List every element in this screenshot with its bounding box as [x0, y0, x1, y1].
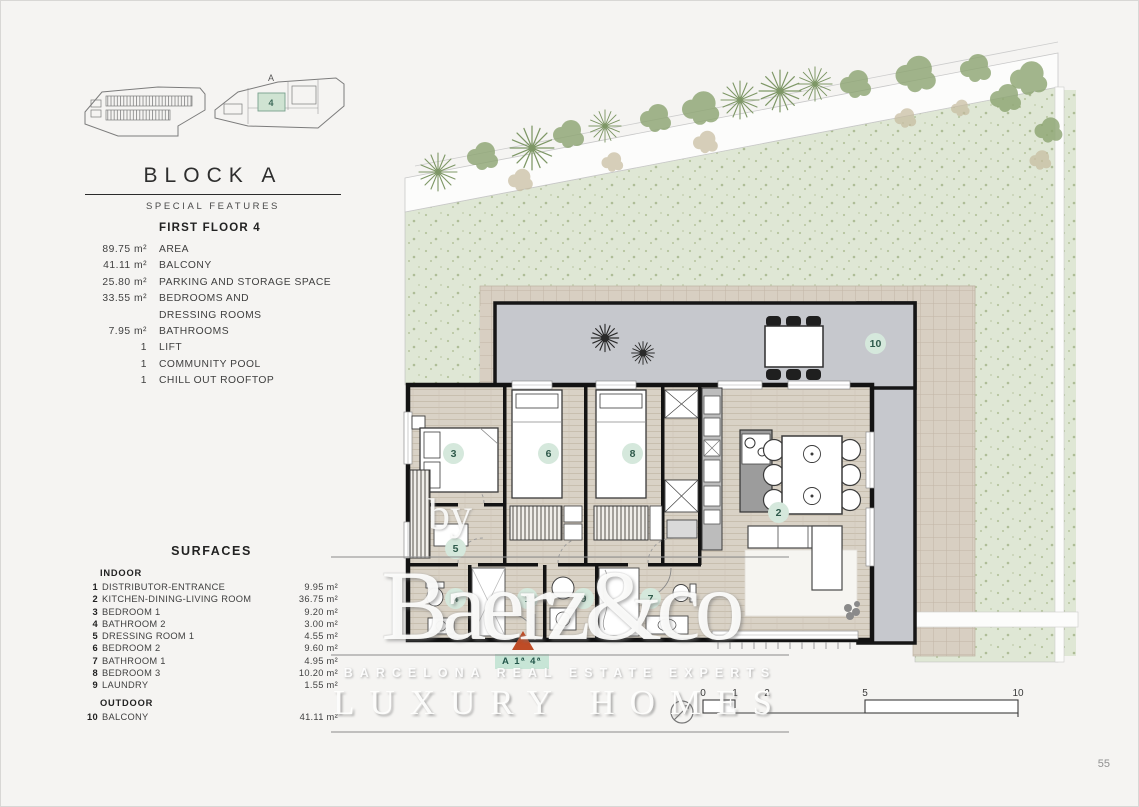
- garden-path-horizontal: [915, 612, 1078, 627]
- page-number: 55: [1078, 758, 1110, 770]
- surfaces-table: SURFACES INDOOR 1DISTRIBUTOR-ENTRANCE9.9…: [85, 544, 338, 723]
- surface-label: LAUNDRY: [102, 679, 148, 691]
- watermark-rule: [331, 731, 789, 733]
- feature-value: 7.95 m²: [85, 324, 147, 340]
- north-compass-icon: [671, 701, 693, 723]
- scale-label: 1: [732, 688, 738, 699]
- feature-label: CHILL OUT ROOFTOP: [159, 373, 335, 389]
- feature-value: 1: [85, 357, 147, 373]
- surface-label: BALCONY: [102, 711, 149, 723]
- feature-value: 1: [85, 340, 147, 356]
- surface-number: 3: [85, 606, 98, 618]
- surface-value: 36.75 m²: [299, 593, 338, 605]
- feature-label: PARKING AND STORAGE SPACE: [159, 275, 335, 291]
- surface-label: DRESSING ROOM 1: [102, 630, 194, 642]
- feature-row: 89.75 m²AREA: [85, 242, 375, 258]
- marker-bedroom3: 8: [622, 443, 643, 464]
- feature-value: 25.80 m²: [85, 275, 147, 291]
- feature-value: 89.75 m²: [85, 242, 147, 258]
- feature-label: AREA: [159, 242, 335, 258]
- feature-label: BALCONY: [159, 258, 335, 274]
- marker-bedroom1: 3: [443, 443, 464, 464]
- feature-row: 7.95 m²BATHROOMS: [85, 324, 375, 340]
- surface-label: BEDROOM 2: [102, 642, 161, 654]
- feature-row: 1LIFT: [85, 340, 375, 356]
- floor-plan-drawing: 0 1 2 5 10: [400, 30, 1080, 730]
- surface-value: 9.20 m²: [304, 606, 338, 618]
- title-divider: [85, 194, 341, 195]
- outdoor-dining-table: [765, 316, 823, 380]
- entrance-tag: A 1ª 4ª: [495, 654, 549, 669]
- garden-path-vertical: [1055, 87, 1064, 662]
- surface-number: 7: [85, 655, 98, 667]
- surface-row: 5DRESSING ROOM 14.55 m²: [85, 630, 338, 642]
- surface-row: 7BATHROOM 14.95 m²: [85, 655, 338, 667]
- indoor-heading: INDOOR: [100, 568, 338, 578]
- surface-value: 3.00 m²: [304, 618, 338, 630]
- feature-label: COMMUNITY POOL: [159, 357, 335, 373]
- marker-living: 2: [768, 502, 789, 523]
- surface-row: 4BATHROOM 23.00 m²: [85, 618, 338, 630]
- site-overview-diagrams: 4 A: [78, 70, 353, 148]
- feature-label: LIFT: [159, 340, 335, 356]
- surface-label: BATHROOM 2: [102, 618, 166, 630]
- surface-number: 9: [85, 679, 98, 691]
- surface-row: 1DISTRIBUTOR-ENTRANCE9.95 m²: [85, 581, 338, 593]
- feature-row: 1CHILL OUT ROOFTOP: [85, 373, 375, 389]
- surface-row: 3BEDROOM 19.20 m²: [85, 606, 338, 618]
- scale-label: 5: [862, 688, 868, 699]
- surface-label: BATHROOM 1: [102, 655, 166, 667]
- site-plan-block-b: [85, 87, 205, 136]
- scale-label: 10: [1012, 688, 1024, 699]
- surface-label: KITCHEN-DINING-LIVING ROOM: [102, 593, 251, 605]
- kitchen-counter: [702, 388, 722, 550]
- title-block: BLOCK A SPECIAL FEATURES: [85, 164, 341, 212]
- surface-label: BEDROOM 3: [102, 667, 161, 679]
- features-heading: FIRST FLOOR 4: [159, 222, 375, 234]
- surface-number: 6: [85, 642, 98, 654]
- page-subtitle: SPECIAL FEATURES: [85, 201, 341, 212]
- surface-label: DISTRIBUTOR-ENTRANCE: [102, 581, 225, 593]
- feature-row: 1COMMUNITY POOL: [85, 357, 375, 373]
- surface-row: 6BEDROOM 29.60 m²: [85, 642, 338, 654]
- surface-value: 9.95 m²: [304, 581, 338, 593]
- feature-row: 25.80 m²PARKING AND STORAGE SPACE: [85, 275, 375, 291]
- surface-value: 9.60 m²: [304, 642, 338, 654]
- feature-value: 33.55 m²: [85, 291, 147, 324]
- lower-terrace-railing: [718, 642, 850, 649]
- surface-row: 10BALCONY41.11 m²: [85, 711, 338, 723]
- page-title: BLOCK A: [85, 164, 341, 188]
- brochure-page: 4 A BLOCK A SPECIAL FEATURES FIRST FLOOR…: [0, 0, 1139, 807]
- surface-number: 8: [85, 667, 98, 679]
- marker-entrance: 1: [517, 588, 538, 609]
- marker-bath1: 7: [640, 588, 661, 609]
- features-list: FIRST FLOOR 4 89.75 m²AREA 41.11 m²BALCO…: [85, 222, 375, 390]
- surface-number: 10: [85, 711, 98, 723]
- surface-number: 2: [85, 593, 98, 605]
- surface-value: 41.11 m²: [300, 711, 338, 723]
- marker-dressing: 5: [445, 538, 466, 559]
- surface-number: 5: [85, 630, 98, 642]
- marker-laundry: 9: [573, 588, 594, 609]
- surface-number: 4: [85, 618, 98, 630]
- feature-label: BATHROOMS: [159, 324, 335, 340]
- floor-plan: 0 1 2 5 10 3 6 8 5 2 4 1 9 7 10 A 1ª 4ª: [400, 30, 1080, 730]
- scale-label: 2: [764, 688, 770, 699]
- surface-value: 4.55 m²: [304, 630, 338, 642]
- surfaces-heading: SURFACES: [85, 544, 338, 558]
- surface-row: 8BEDROOM 310.20 m²: [85, 667, 338, 679]
- scale-label: 0: [700, 688, 706, 699]
- feature-row: 33.55 m²BEDROOMS AND DRESSING ROOMS: [85, 291, 375, 324]
- feature-value: 1: [85, 373, 147, 389]
- marker-balcony: 10: [865, 333, 886, 354]
- surface-number: 1: [85, 581, 98, 593]
- surface-label: BEDROOM 1: [102, 606, 161, 618]
- surface-row: 2KITCHEN-DINING-LIVING ROOM36.75 m²: [85, 593, 338, 605]
- scale-bar: 0 1 2 5 10: [700, 688, 1024, 717]
- feature-row: 41.11 m²BALCONY: [85, 258, 375, 274]
- outdoor-heading: OUTDOOR: [100, 698, 338, 708]
- feature-label: BEDROOMS AND DRESSING ROOMS: [159, 291, 277, 324]
- surface-value: 10.20 m²: [299, 667, 338, 679]
- surface-row: 9LAUNDRY1.55 m²: [85, 679, 338, 691]
- marker-bath2: 4: [445, 588, 466, 609]
- block-a-label: A: [268, 73, 274, 83]
- marker-bedroom2: 6: [538, 443, 559, 464]
- feature-value: 41.11 m²: [85, 258, 147, 274]
- highlighted-unit-number: 4: [268, 98, 273, 108]
- surface-value: 4.95 m²: [304, 655, 338, 667]
- surface-value: 1.55 m²: [304, 679, 338, 691]
